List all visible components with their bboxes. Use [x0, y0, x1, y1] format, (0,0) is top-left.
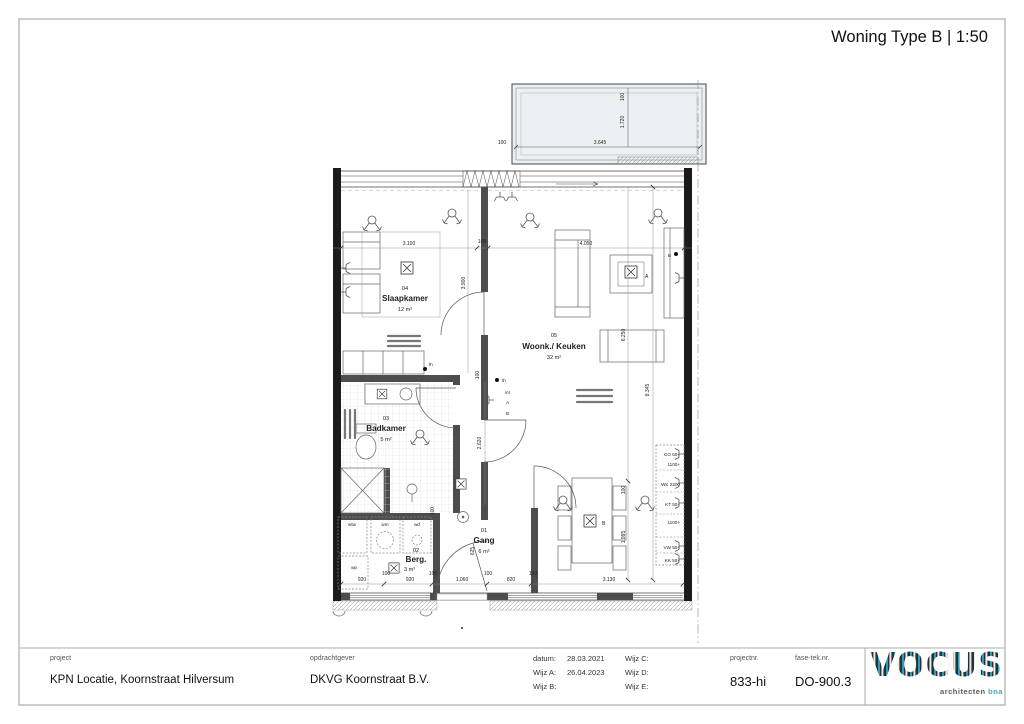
room-area: 5 m²: [380, 437, 391, 443]
room-number: 02: [413, 548, 419, 554]
label-th-1: th: [429, 362, 433, 367]
kitchen-note: KT 50+: [665, 502, 680, 507]
dim-label: 4.050: [580, 241, 593, 247]
appliance-wm: wm: [381, 522, 388, 527]
room-name: Badkamer: [366, 424, 406, 433]
room-area: 6 m²: [478, 549, 489, 555]
room-number: 01: [481, 528, 487, 534]
vocus-wordmark: VOCUS: [870, 650, 1003, 680]
dim-label: 2.620: [477, 437, 483, 450]
room-labels: 04 Slaapkamer 12 m² 05 Woonk./ Keuken 32…: [366, 286, 586, 573]
dim-label: 3.900: [461, 277, 467, 290]
kitchen-note: VW 50+: [664, 545, 681, 550]
vocus-logo: VOCUS architecten bna: [863, 650, 1003, 699]
client-label: opdrachtgever: [310, 655, 355, 662]
dim-label: 100: [429, 571, 438, 577]
dim-label: 100: [382, 571, 391, 577]
dim-label: 100: [484, 571, 493, 577]
dim-balcony-100: 100: [620, 93, 626, 102]
dim-label: 1.995: [621, 531, 627, 544]
wijz-a-value: 26.04.2023: [567, 668, 605, 677]
label-switch-a: A: [506, 400, 510, 405]
dim-balcony-depth: 1.720: [620, 116, 626, 129]
room-area: 12 m²: [398, 307, 412, 313]
appliance-wp: wp: [351, 565, 357, 570]
dim-label: 100: [621, 486, 627, 495]
vocus-sub: architecten: [940, 687, 986, 696]
room-number: 03: [383, 416, 389, 422]
balcony: 3.645 100 1.720 100: [498, 84, 706, 164]
wijz-c-label: Wijz C:: [625, 654, 659, 663]
dim-label: 3.100: [403, 241, 416, 247]
projectnr-label: projectnr.: [730, 655, 759, 662]
room-area: 32 m²: [547, 355, 561, 361]
dim-balcony-width: 3.645: [594, 140, 607, 146]
project-value: KPN Locatie, Koornstraat Hilversum: [50, 674, 234, 686]
room-number: 04: [402, 286, 408, 292]
kitchen-note: CO 50+: [664, 452, 680, 457]
wijz-b-label: Wijz B:: [533, 682, 567, 691]
room-name: Gang: [474, 536, 495, 545]
room-name: Berg.: [406, 555, 427, 564]
appliance-wd: wd: [414, 522, 420, 527]
datum-label: datum:: [533, 654, 567, 663]
title-block: project KPN Locatie, Koornstraat Hilvers…: [19, 648, 1005, 705]
vocus-bna: bna: [988, 687, 1003, 696]
fase-label: fase-tek.nr.: [795, 655, 830, 662]
room-area: 3 m²: [404, 567, 415, 573]
projectnr-value: 833-hi: [730, 674, 766, 689]
kitchen-note: 1100+: [667, 520, 680, 525]
woonkamer-furniture: [521, 209, 685, 570]
floor-plan: 3.645 100 1.720 100: [0, 0, 1024, 724]
room-name: Woonk./ Keuken: [522, 342, 586, 351]
dim-label: 920: [406, 577, 415, 583]
dim-label: 1.060: [456, 577, 469, 583]
dim-label: 100: [529, 571, 538, 577]
room-name: Slaapkamer: [382, 294, 429, 303]
dim-label: 6.250: [621, 329, 627, 342]
label-th-2: th: [502, 378, 506, 383]
label-switch-b2: B: [668, 253, 671, 258]
fase-value: DO-900.3: [795, 674, 851, 689]
datum-value: 28.03.2021: [567, 654, 605, 663]
dim-label: 625: [470, 547, 476, 556]
kitchen-note: 1100+: [667, 462, 680, 467]
client-value: DKVG Koornstraat B.V.: [310, 674, 429, 686]
label-switch-b: B: [506, 411, 509, 416]
dim-label: 820: [507, 577, 516, 583]
kitchen-note: KK 50+: [665, 558, 681, 563]
project-label: project: [50, 655, 71, 662]
dim-balcony-offset: 100: [498, 140, 507, 146]
label-int: int: [505, 390, 511, 395]
dim-label: 100: [478, 239, 487, 245]
dim-label: 3.130: [603, 577, 616, 583]
dim-label: 100: [430, 507, 436, 516]
kitchen-note: WK 2200: [661, 482, 680, 487]
room-number: 05: [551, 333, 557, 339]
appliance-wtw: wtw: [348, 522, 357, 527]
dim-label: 100: [475, 371, 481, 380]
wijz-a-label: Wijz A:: [533, 668, 567, 677]
dim-label: 8.345: [645, 384, 651, 397]
wijz-e-label: Wijz E:: [625, 682, 659, 691]
drawing-sheet: Woning Type B | 1:50: [0, 0, 1024, 724]
badkamer-fixtures: [341, 382, 453, 513]
wijz-d-label: Wijz D:: [625, 668, 659, 677]
dim-label: 920: [358, 577, 367, 583]
